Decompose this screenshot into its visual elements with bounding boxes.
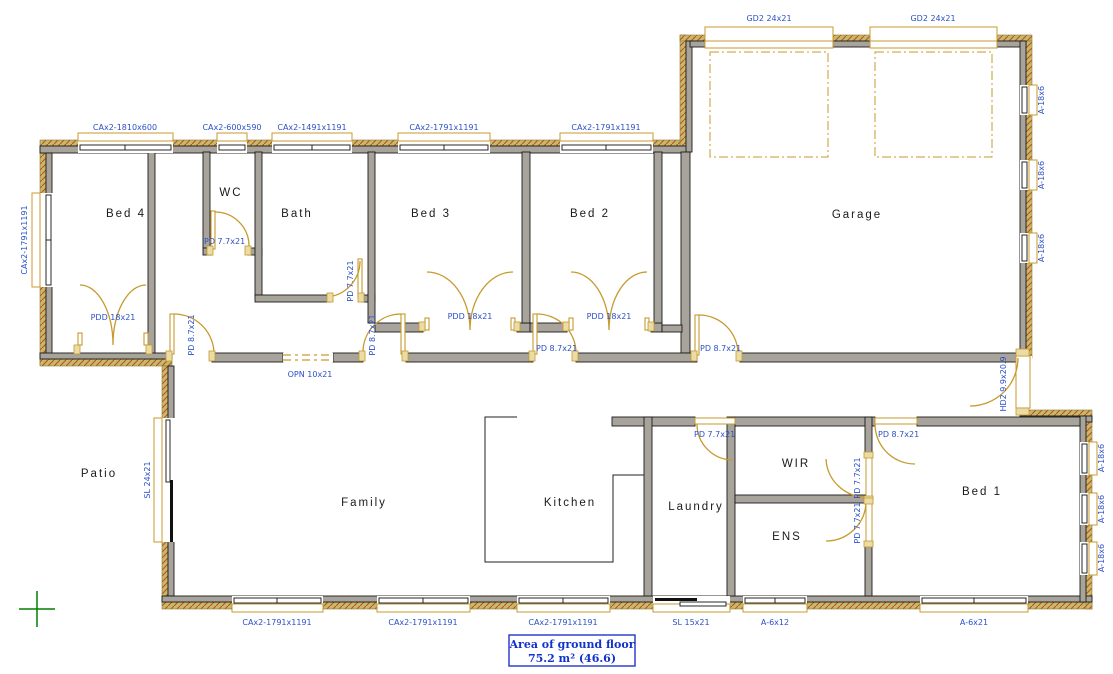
door-label: PD 7.7x21: [204, 237, 245, 246]
door-ens: PD 7.7x21: [826, 498, 873, 547]
door-bed2-robe: PDD 18x21: [563, 272, 654, 331]
door-label: PDD 18x21: [448, 312, 493, 321]
door-label: PD 8.7x21: [187, 314, 196, 355]
room-label-bed1: Bed 1: [962, 486, 1002, 498]
room-label-garage: Garage: [832, 209, 882, 221]
door-label: PD 7.7x21: [346, 260, 355, 301]
window-label: A-6x12: [761, 618, 789, 627]
door-bed1: PD 8.7x21: [875, 418, 919, 464]
window-bed1-right2: A-18x6: [1080, 493, 1106, 525]
window-label: A-18x6: [1097, 544, 1106, 572]
window-garage-right2: A-18x6: [1020, 160, 1046, 190]
garage-door-2: GD2 24x21: [870, 14, 997, 157]
door-hall-left: PD 8.7x21: [166, 314, 215, 361]
window-garage-right1: A-18x6: [1020, 85, 1046, 115]
window-ens-bottom: A-6x12: [743, 596, 807, 627]
room-label-bed2: Bed 2: [570, 208, 610, 220]
slider-laundry: SL 15x21: [653, 596, 730, 627]
door-label: PD 8.7x21: [700, 344, 741, 353]
opening-hall: OPN 10x21: [283, 353, 333, 379]
window-label: A-18x6: [1097, 444, 1106, 472]
door-label: PDD 18x21: [91, 313, 136, 322]
window-bed1-right1: A-18x6: [1080, 442, 1106, 475]
door-bath: PD 7.7x21: [326, 259, 364, 302]
window-bed1-right3: A-18x6: [1080, 542, 1106, 575]
room-label-wc: WC: [219, 187, 242, 199]
door-label: HD2 9.9x20.9: [999, 356, 1008, 411]
door-wir: PD 7.7x21: [826, 452, 873, 502]
room-label-bed4: Bed 4: [106, 208, 146, 220]
kitchen-counter: [485, 417, 644, 562]
window-label: CAx2-1791x1191: [528, 618, 597, 627]
room-label-ens: ENS: [772, 531, 802, 543]
window-label: CAx2-1791x1191: [571, 123, 640, 132]
window-bottom1: CAx2-1791x1191: [232, 596, 323, 627]
window-label: A-18x6: [1037, 86, 1046, 114]
window-bed1-bottom: A-6x21: [920, 596, 1028, 627]
opening-label: OPN 10x21: [288, 370, 333, 379]
area-value: 75.2 m² (46.6): [528, 652, 616, 665]
door-label: PD 7.7x21: [853, 502, 862, 543]
room-label-bath: Bath: [281, 208, 313, 220]
door-bed3-robe: PDD 18x21: [419, 272, 520, 331]
area-title: Area of ground floor: [509, 638, 635, 651]
window-label: SL 24x21: [143, 461, 152, 498]
window-label: SL 15x21: [672, 618, 709, 627]
floor-plan-page: CAx2-1810x600 CAx2-600x590 CAx2-1491x119…: [0, 0, 1113, 674]
door-wc: PD 7.7x21: [204, 211, 251, 255]
window-label: CAx2-1491x1191: [277, 123, 346, 132]
door-garage-entry: PD 8.7x21: [691, 315, 742, 361]
window-top5: CAx2-1791x1191: [560, 123, 653, 153]
floor-plan-canvas: CAx2-1810x600 CAx2-600x590 CAx2-1491x119…: [0, 0, 1113, 674]
window-top4: CAx2-1791x1191: [398, 123, 490, 153]
window-bottom2: CAx2-1791x1191: [377, 596, 470, 627]
slider-family: SL 24x21: [143, 418, 175, 542]
window-label: CAx2-1791x1191: [20, 205, 29, 274]
window-top3: CAx2-1491x1191: [272, 123, 352, 153]
window-label: CAx2-1791x1191: [409, 123, 478, 132]
window-label: A-6x21: [960, 618, 988, 627]
window-bottom3: CAx2-1791x1191: [517, 596, 610, 627]
window-label: CAx2-600x590: [202, 123, 261, 132]
door-label: PD 8.7x21: [536, 344, 577, 353]
room-label-patio: Patio: [81, 468, 117, 480]
room-label-laundry: Laundry: [668, 501, 724, 513]
window-label: A-18x6: [1037, 161, 1046, 189]
room-label-family: Family: [341, 497, 387, 509]
window-label: A-18x6: [1037, 234, 1046, 262]
room-label-wir: WIR: [782, 458, 810, 470]
door-label: PD 8.7x21: [878, 430, 919, 439]
door-label: PD 8.7x21: [368, 314, 377, 355]
window-label: CAx2-1810x600: [93, 123, 157, 132]
window-label: A-18x6: [1097, 495, 1106, 523]
garage-door-label: GD2 24x21: [746, 14, 791, 23]
window-top1: CAx2-1810x600: [78, 123, 173, 153]
garage-door-1: GD2 24x21: [705, 14, 833, 157]
window-label: CAx2-1791x1191: [242, 618, 311, 627]
area-summary-box: Area of ground floor 75.2 m² (46.6): [509, 635, 636, 666]
garage-door-label: GD2 24x21: [910, 14, 955, 23]
window-garage-right3: A-18x6: [1020, 233, 1046, 263]
door-label: PD 7.7x21: [853, 457, 862, 498]
door-label: PDD 18x21: [587, 312, 632, 321]
window-label: CAx2-1791x1191: [388, 618, 457, 627]
room-label-bed3: Bed 3: [411, 208, 451, 220]
origin-cross-icon: [19, 591, 55, 627]
door-bed4-robe: PDD 18x21: [74, 285, 152, 354]
window-left-bed4: CAx2-1791x1191: [20, 193, 53, 287]
door-label: PD 7.7x21: [694, 430, 735, 439]
room-label-kitchen: Kitchen: [544, 497, 596, 509]
door-hall-mid: PD 8.7x21: [359, 314, 408, 361]
